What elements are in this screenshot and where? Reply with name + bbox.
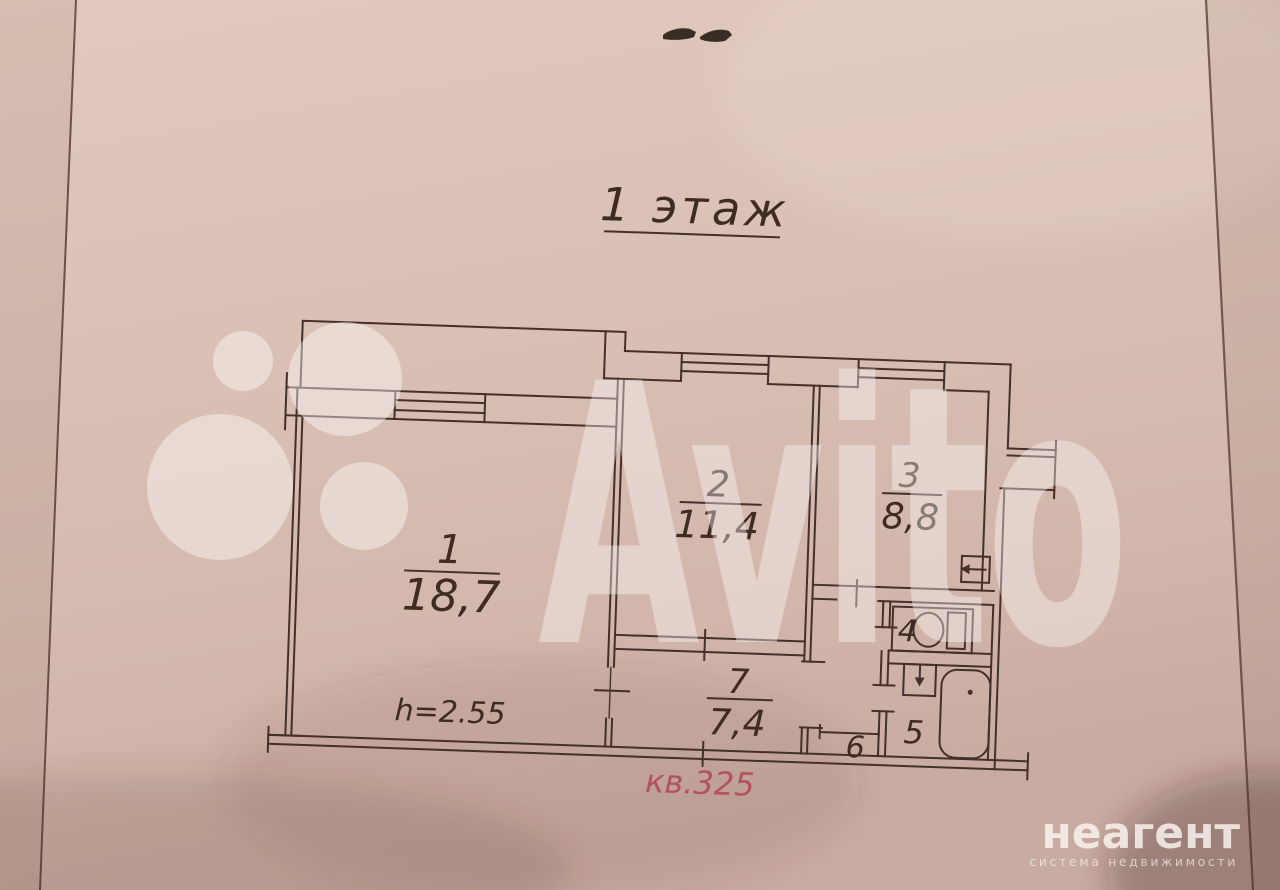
avito-dot-bottom-right <box>320 462 408 550</box>
floor-title: 1 этаж <box>599 177 790 238</box>
avito-dot-small <box>213 331 273 391</box>
south-wall-right-tick <box>1027 753 1028 779</box>
ceiling-height-label: h=2.55 <box>394 693 506 732</box>
avito-wordmark: Avito <box>538 309 1126 727</box>
avito-dot-top-right <box>288 322 402 436</box>
neagent-subtitle: система недвижимости <box>1029 854 1238 869</box>
south-wall-mid-tick <box>702 742 703 766</box>
neagent-watermark: неагент система недвижимости <box>1029 808 1240 869</box>
avito-dot-large <box>147 414 293 560</box>
floor-plan-photo: 1 этаж <box>0 0 1280 890</box>
south-wall-left-tick <box>268 727 269 752</box>
room-6-number: 6 <box>845 730 865 766</box>
room-1-area: 18,7 <box>401 569 501 623</box>
neagent-wordmark: неагент <box>1041 808 1240 859</box>
apartment-number-label: кв.325 <box>645 762 756 804</box>
room-1-number: 1 <box>436 527 463 574</box>
